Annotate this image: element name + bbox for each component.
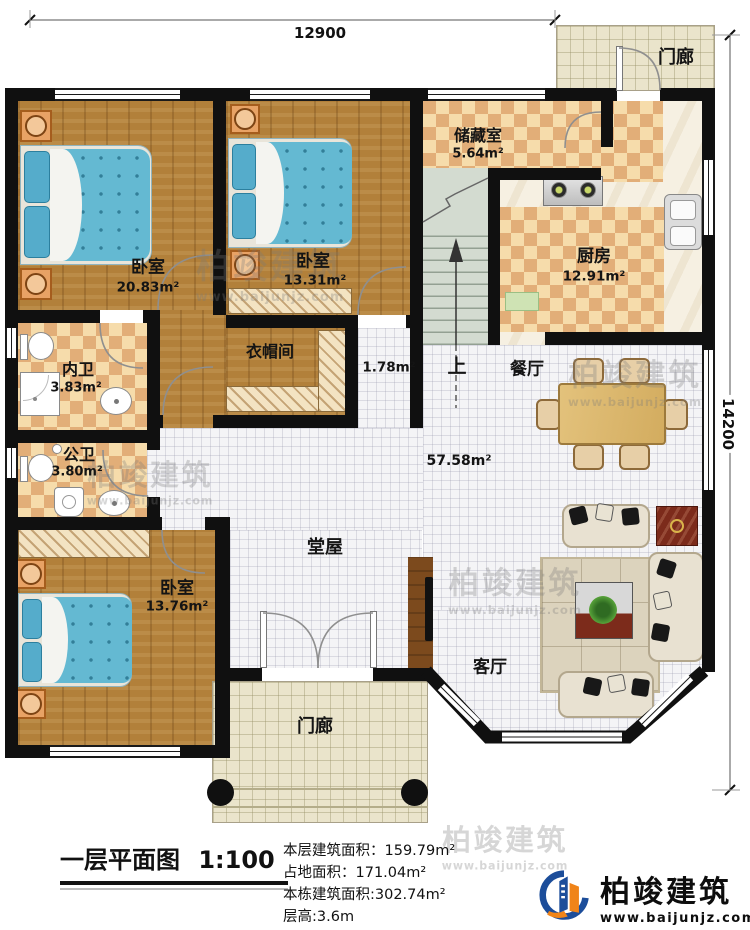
stove-burner xyxy=(551,182,567,198)
label-bedroom3: 卧室 xyxy=(160,581,194,598)
label-kitchen-area: 12.91m² xyxy=(563,270,626,284)
sink-basin xyxy=(670,200,696,220)
stat-total-area: 本栋建筑面积:302.74m² xyxy=(283,884,455,906)
showerhead-icon xyxy=(52,444,62,454)
plan-stats: 本层建筑面积：159.79m² 占地面积：171.04m² 本栋建筑面积:302… xyxy=(283,840,455,928)
logo-url: www.baijunjz.com xyxy=(600,911,750,926)
stat-footprint-area: 占地面积：171.04m² xyxy=(283,862,455,884)
window xyxy=(702,160,715,235)
main-hall-floor-upper xyxy=(147,428,423,530)
kitchen-mat xyxy=(505,292,539,311)
hallway-floor xyxy=(158,310,226,428)
window xyxy=(250,88,370,101)
plant-icon xyxy=(589,596,617,624)
watermark: 柏竣建筑www.baijunjz.com xyxy=(442,817,568,873)
window xyxy=(702,350,715,490)
label-cloakroom: 衣帽间 xyxy=(246,344,294,360)
porch-step-line xyxy=(212,806,428,808)
logo-icon xyxy=(536,866,592,926)
stair-treads xyxy=(423,232,488,345)
label-public-bath: 公卫 xyxy=(63,447,95,463)
title-block: 一层平面图 1:100 xyxy=(60,840,288,890)
door-leaf xyxy=(260,611,267,668)
cloakroom-rack-right xyxy=(318,330,346,412)
washing-machine-icon xyxy=(54,487,84,517)
label-bedroom1-area: 20.83m² xyxy=(117,281,180,295)
label-stairs-up: 上 xyxy=(447,358,466,377)
window xyxy=(428,88,545,101)
label-kitchen: 厨房 xyxy=(577,249,611,266)
door-leaf xyxy=(616,46,623,91)
nightstand xyxy=(16,559,46,589)
toilet-tank xyxy=(20,456,28,482)
porch-bottom-floor xyxy=(212,681,428,823)
label-corridor-area: 1.78m² xyxy=(362,361,415,375)
label-bedroom1: 卧室 xyxy=(131,260,165,277)
label-porch-top: 门廊 xyxy=(658,49,694,67)
title-underline xyxy=(60,881,288,885)
door-leaf xyxy=(370,611,377,668)
window xyxy=(5,448,18,478)
label-porch-bottom: 门廊 xyxy=(297,718,333,736)
label-public-bath-area: 3.80m² xyxy=(51,466,102,479)
plan-title: 一层平面图 xyxy=(60,846,180,874)
toilet-icon xyxy=(28,332,54,360)
title-underline-thin xyxy=(60,888,288,890)
label-inner-bath: 内卫 xyxy=(62,362,94,378)
floor-plan: 柏竣建筑www.baijunjz.com 柏竣建筑www.baijunjz.co… xyxy=(0,0,750,930)
sink-basin xyxy=(670,226,696,246)
nightstand xyxy=(230,250,260,280)
window xyxy=(55,88,180,101)
label-bedroom3-area: 13.76m² xyxy=(146,600,209,614)
window xyxy=(50,745,180,758)
wardrobe-bedroom3 xyxy=(18,528,150,558)
corner-cabinet xyxy=(656,506,698,546)
wardrobe-bedroom2 xyxy=(228,288,352,314)
toilet-tank xyxy=(20,334,28,360)
company-logo: 柏竣建筑 www.baijunjz.com xyxy=(536,866,750,926)
dimension-width: 12900 xyxy=(294,24,346,42)
nightstand xyxy=(230,104,260,134)
stat-floor-area: 本层建筑面积：159.79m² xyxy=(283,840,455,862)
logo-name: 柏竣建筑 xyxy=(600,867,750,911)
cloakroom-rack-bottom xyxy=(226,386,322,412)
dining-table xyxy=(558,383,666,445)
label-bedroom2-area: 13.31m² xyxy=(284,274,347,288)
plan-scale: 1:100 xyxy=(198,846,274,874)
label-dining: 餐厅 xyxy=(510,362,544,379)
toilet-icon xyxy=(28,454,54,482)
label-main-hall: 堂屋 xyxy=(307,539,343,557)
label-inner-bath-area: 3.83m² xyxy=(50,382,101,395)
dimension-height: 14200 xyxy=(719,395,737,453)
nightstand xyxy=(20,268,52,300)
storage-floor xyxy=(423,101,601,168)
nightstand xyxy=(20,110,52,142)
label-storage-area: 5.64m² xyxy=(452,148,503,161)
label-hall-area: 57.58m² xyxy=(426,454,491,468)
label-bedroom2: 卧室 xyxy=(296,254,330,271)
tv-icon xyxy=(425,577,433,641)
porch-step-line xyxy=(212,788,428,790)
label-storage: 储藏室 xyxy=(454,128,502,144)
nightstand xyxy=(16,689,46,719)
porch-column xyxy=(401,779,428,806)
window xyxy=(5,328,18,358)
stat-floor-height: 层高:3.6m xyxy=(283,906,455,928)
washbasin-icon xyxy=(98,490,130,516)
stove-burner xyxy=(580,182,596,198)
porch-column xyxy=(207,779,234,806)
label-living: 客厅 xyxy=(473,660,507,677)
washbasin-icon xyxy=(100,387,132,415)
